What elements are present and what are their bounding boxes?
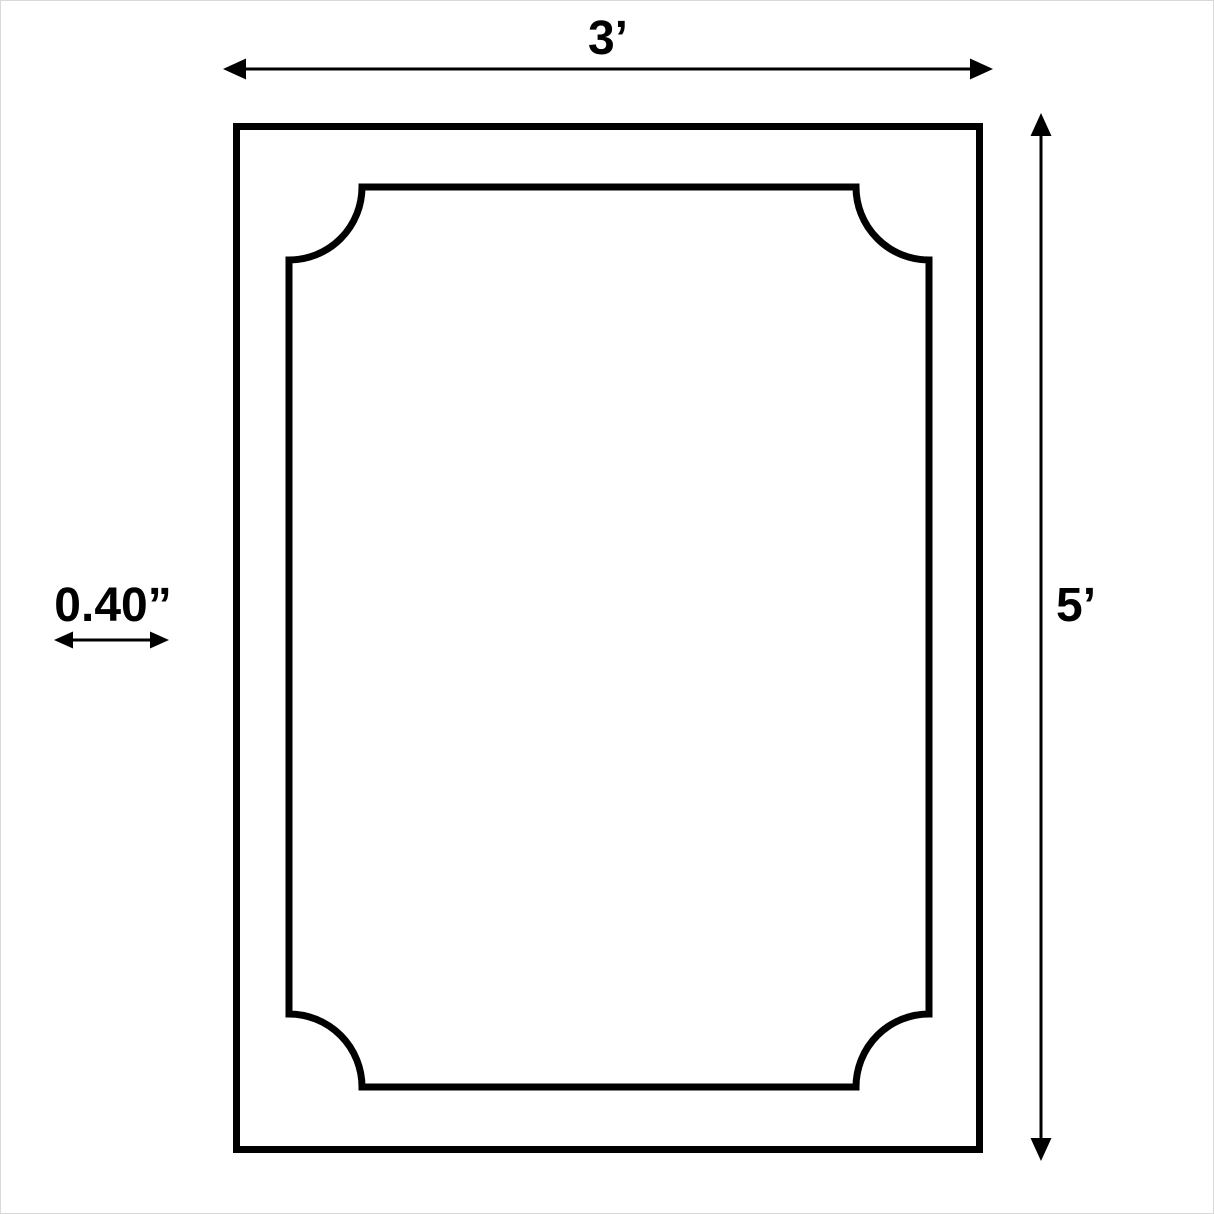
width-dimension-label: 3’: [588, 15, 628, 63]
height-arrow-bottom-head-icon: [1031, 1138, 1052, 1161]
thickness-arrow-right-head-icon: [150, 632, 169, 649]
dimension-diagram: 3’ 5’ 0.40”: [0, 0, 1214, 1214]
height-arrow-top-head-icon: [1031, 113, 1052, 136]
outer-rectangle-outline: [237, 127, 980, 1150]
width-arrow-left-head-icon: [223, 59, 246, 80]
thickness-dimension-arrow: [54, 632, 169, 649]
diagram-drawing: [1, 1, 1214, 1214]
width-arrow-right-head-icon: [970, 59, 993, 80]
height-dimension-label: 5’: [1056, 582, 1096, 630]
thickness-dimension-label: 0.40”: [54, 582, 171, 630]
thickness-arrow-left-head-icon: [54, 632, 73, 649]
height-dimension-arrow: [1031, 113, 1052, 1161]
